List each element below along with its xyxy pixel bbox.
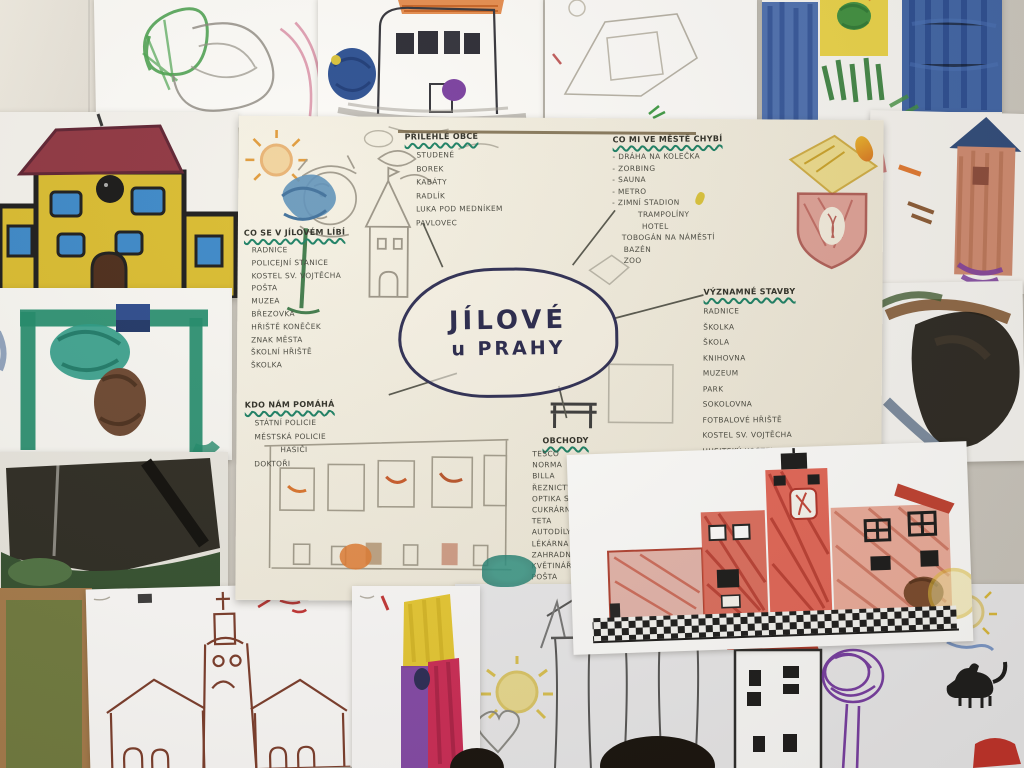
list-item: - ZORBING xyxy=(612,162,722,174)
list-item: FOTBALOVÉ HŘIŠTĚ xyxy=(703,412,795,428)
list-item: LUKA POD MEDNÍKEM xyxy=(404,202,503,216)
paper-dark-watercolor xyxy=(874,281,1024,464)
group-helpers-title: KDO NÁM POMÁHÁ xyxy=(245,400,335,410)
group-buildings-title: VÝZNAMNÉ STAVBY xyxy=(703,287,795,297)
faint-pencil-drawing xyxy=(545,0,757,128)
list-item: RADLÍK xyxy=(404,188,503,202)
list-item: ZNAK MĚSTA xyxy=(243,333,344,347)
list-item: HŘIŠTĚ KONĚČEK xyxy=(243,321,344,335)
list-item: MUZEA xyxy=(243,295,344,309)
list-item: MĚSTSKÁ POLICIE xyxy=(244,429,334,443)
paper-ink-house xyxy=(318,0,543,122)
church-drawing xyxy=(86,583,359,768)
list-item: KABÁTY xyxy=(404,175,503,189)
list-item: PARK xyxy=(703,381,795,397)
group-likes-title: CO SE V JÍLOVÉM LÍBÍ xyxy=(244,228,345,238)
list-item: ŠKOLNÍ HŘIŠTĚ xyxy=(243,346,344,360)
list-item: TOBOGÁN NA NÁMĚSTÍ xyxy=(612,232,722,244)
list-item: BOREK xyxy=(404,161,503,175)
list-item: ŠKOLKA xyxy=(243,359,344,373)
list-item: - SAUNA xyxy=(612,174,722,186)
group-missing-title: CO MI VE MĚSTĚ CHYBÍ xyxy=(612,134,722,144)
list-item: ŠKOLA xyxy=(703,334,795,350)
corkboard-surface xyxy=(6,600,82,768)
group-shops-title: OBCHODY xyxy=(542,436,588,445)
list-item: ŠKOLKA xyxy=(703,319,795,335)
list-item: - DRÁHA NA KOLEČKA xyxy=(612,150,722,162)
group-shops: OBCHODY xyxy=(542,428,588,447)
list-item: RADNICE xyxy=(244,244,345,258)
orange-tower-drawing xyxy=(866,110,1024,294)
corkboard xyxy=(0,588,92,768)
scribble-drawing xyxy=(94,0,331,130)
paper-topleft-scribble xyxy=(94,0,331,130)
town-name: JÍLOVÉ xyxy=(449,305,568,337)
town-name-suffix: u PRAHY xyxy=(451,337,565,361)
list-item: KNIHOVNA xyxy=(703,350,795,366)
photo-drawing-wall: JÍLOVÉ u PRAHY CO SE V JÍLOVÉM LÍBÍ RADN… xyxy=(0,0,1024,768)
paper-orange-tower xyxy=(866,110,1024,294)
list-item: SOKOLOVNA xyxy=(703,396,795,412)
group-villages-title: PŘILEHLÉ OBCE xyxy=(405,132,479,142)
list-item: - ZIMNÍ STADION xyxy=(612,197,722,209)
mindmap-center-bubble: JÍLOVÉ u PRAHY xyxy=(397,266,619,399)
color-tower-drawing xyxy=(352,586,480,768)
yellow-house-painting xyxy=(0,112,238,298)
green-frame-painting xyxy=(0,288,232,460)
list-item: TRAMPOLÍNY xyxy=(612,208,722,220)
ink-house-drawing xyxy=(318,0,543,122)
list-item: POŠTA xyxy=(243,282,344,296)
group-villages: PŘILEHLÉ OBCE STUDENÉ BOREK KABÁTY RADLÍ… xyxy=(404,124,503,230)
dark-watercolor-drawing xyxy=(874,281,1024,464)
list-item: ZOO xyxy=(612,255,722,267)
list-item: RADNICE xyxy=(703,303,795,319)
paper-church xyxy=(86,583,359,768)
group-buildings: VÝZNAMNÉ STAVBY RADNICE ŠKOLKA ŠKOLA KNI… xyxy=(702,279,795,459)
list-item: KOSTEL SV. VOJTĚCHA xyxy=(702,427,794,443)
list-item: HASIČI xyxy=(244,443,334,457)
paper-red-townhall xyxy=(567,441,974,655)
paper-dark-green xyxy=(0,452,228,596)
list-item: STÁTNÍ POLICIE xyxy=(245,416,335,430)
paper-yellow-house xyxy=(0,112,238,298)
list-item: BŘEZOVKA xyxy=(243,308,344,322)
dark-green-painting xyxy=(0,452,228,596)
paper-faint-sketch xyxy=(545,0,757,128)
group-helpers: KDO NÁM POMÁHÁ STÁTNÍ POLICIE MĚSTSKÁ PO… xyxy=(244,392,335,471)
list-item: STUDENÉ xyxy=(404,148,503,162)
group-missing: CO MI VE MĚSTĚ CHYBÍ - DRÁHA NA KOLEČKA … xyxy=(612,126,723,267)
list-item: DOKTOŘI xyxy=(244,456,334,470)
list-item: MUZEUM xyxy=(703,365,795,381)
list-item: KOSTEL SV. VOJTĚCHA xyxy=(244,269,345,283)
wall-corner-shadow xyxy=(88,0,90,114)
paper-green-frame xyxy=(0,288,232,460)
group-likes: CO SE V JÍLOVÉM LÍBÍ RADNICE POLICEJNÍ S… xyxy=(243,220,345,373)
list-item: PAVLOVEC xyxy=(404,215,503,229)
red-townhall-drawing xyxy=(567,441,974,655)
list-item: HOTEL xyxy=(612,220,722,232)
paper-color-tower xyxy=(352,586,480,768)
list-item: POLICEJNÍ STANICE xyxy=(244,257,345,271)
